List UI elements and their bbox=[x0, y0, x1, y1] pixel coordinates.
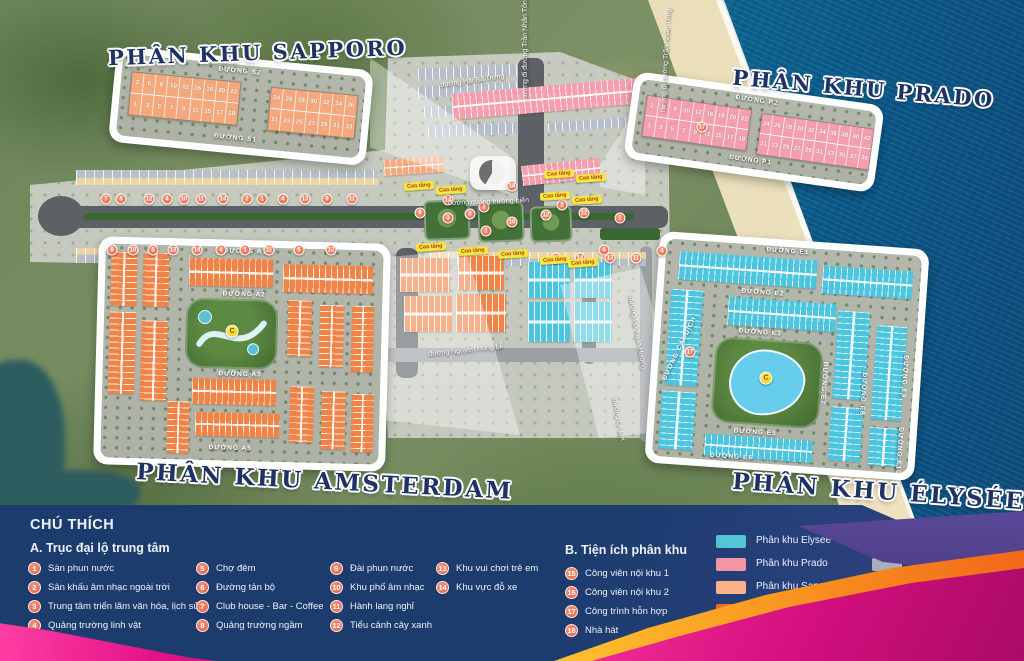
amenity-marker-12: 12 bbox=[579, 208, 590, 219]
road-label: ĐƯỜNG S2 bbox=[218, 66, 262, 77]
lot-strip bbox=[110, 252, 137, 307]
lot-strip bbox=[289, 386, 314, 443]
lot-strip bbox=[678, 251, 818, 289]
amenity-marker-7: 7 bbox=[101, 194, 112, 205]
legend-item-4: 4Quảng trường linh vật bbox=[28, 618, 196, 632]
legend-item-label: Chợ đêm bbox=[216, 563, 256, 574]
legend-item-number: 13 bbox=[436, 562, 449, 575]
amenity-marker-5: 5 bbox=[148, 245, 159, 256]
legend-item-11: 11Hành lang nghỉ bbox=[330, 599, 436, 613]
legend-item-label: Hành lang nghỉ bbox=[350, 601, 414, 612]
legend-item-label: Tiểu cảnh cây xanh bbox=[350, 620, 432, 631]
east-median bbox=[600, 228, 660, 240]
amenity-marker-9: 9 bbox=[107, 245, 118, 256]
amenity-marker-11: 11 bbox=[196, 194, 207, 205]
road-label: ĐƯỜNG A5 bbox=[208, 444, 251, 452]
legend-item-number: 14 bbox=[436, 581, 449, 594]
lot-strip bbox=[321, 391, 347, 450]
amenity-marker-1: 1 bbox=[615, 213, 626, 224]
amenity-marker-4: 4 bbox=[216, 245, 227, 256]
legend-item-14: 14Khu vực đỗ xe bbox=[436, 580, 538, 594]
road-label: ĐƯỜNG E7 bbox=[819, 361, 829, 405]
sapporo-lot-block: 24262830323436 21232527293133 bbox=[267, 87, 359, 139]
legend-column: 9Đài phun nước10Khu phố âm nhạc11Hành la… bbox=[330, 561, 436, 637]
legend-item-2: 2Sân khấu âm nhạc ngoài trời bbox=[28, 580, 196, 594]
legend-item-3: 3Trung tâm triển lãm văn hóa, lịch sử bbox=[28, 599, 196, 613]
legend-item-label: Khu vực đỗ xe bbox=[456, 582, 517, 593]
legend-item-number: 9 bbox=[330, 562, 343, 575]
amenity-marker-8: 8 bbox=[116, 194, 127, 205]
lot-33: 33 bbox=[342, 116, 355, 138]
legend-item-label: Trung tâm triển lãm văn hóa, lịch sử bbox=[48, 601, 200, 612]
legend-item-label: Sàn phun nước bbox=[48, 563, 114, 574]
amenity-marker-4: 4 bbox=[162, 194, 173, 205]
legend-item-number: 6 bbox=[196, 581, 209, 594]
amenity-marker-17: 17 bbox=[685, 347, 696, 358]
roundabout bbox=[38, 196, 84, 236]
amenity-marker-10: 10 bbox=[507, 217, 518, 228]
legend-item-12: 12Tiểu cảnh cây xanh bbox=[330, 618, 436, 632]
road-label: hướng đi đường Trần Nhân Tông bbox=[522, 0, 529, 100]
decorative-ribbon-right bbox=[554, 511, 1024, 661]
legend-title: CHÚ THÍCH bbox=[30, 517, 114, 533]
legend-item-9: 9Đài phun nước bbox=[330, 561, 436, 575]
amenity-marker-2: 2 bbox=[242, 194, 253, 205]
prado-lot-block: 24262830323436384042 2123252729313335373… bbox=[756, 113, 875, 170]
amsterdam-central-park: C bbox=[185, 298, 279, 370]
elysee-mini-zone bbox=[528, 302, 570, 342]
amenity-marker-11: 11 bbox=[264, 245, 275, 256]
amenity-marker-14: 14 bbox=[218, 194, 229, 205]
central-park-square bbox=[529, 205, 572, 242]
legend-column: 5Chợ đêm6Đường tản bộ7Club house - Bar -… bbox=[196, 561, 330, 637]
amenity-marker-18: 18 bbox=[507, 181, 518, 192]
legend-item-label: Đường tản bộ bbox=[216, 582, 275, 593]
legend-item-number: 5 bbox=[196, 562, 209, 575]
elysee-central-park: C bbox=[710, 336, 824, 429]
lot-strip bbox=[287, 300, 312, 357]
road-label: ĐƯỜNG E9 bbox=[899, 355, 909, 399]
legend-item-label: Quảng trường ngầm bbox=[216, 620, 303, 631]
road-label: ĐƯỜNG S1 bbox=[214, 133, 258, 144]
road-label: ĐƯỜNG A3 bbox=[218, 370, 261, 378]
legend-section-a-title: A. Trục đại lộ trung tâm bbox=[30, 541, 170, 555]
amenity-marker-1: 1 bbox=[240, 245, 251, 256]
legend-item-8: 8Quảng trường ngầm bbox=[196, 618, 330, 632]
lot-strip bbox=[108, 312, 136, 395]
lot-42: 42 bbox=[861, 128, 874, 148]
amenity-marker-8: 8 bbox=[465, 209, 476, 220]
shophouse-row bbox=[76, 170, 378, 185]
road-label: ĐƯỜNG E1 bbox=[766, 246, 810, 256]
lot-strip bbox=[140, 320, 168, 401]
road-label: ĐƯỜNG E3 bbox=[738, 328, 782, 338]
road-label: ĐƯỜNG P2 bbox=[735, 94, 779, 107]
amenity-marker-12: 12 bbox=[326, 245, 337, 256]
amenity-marker-12: 12 bbox=[144, 194, 155, 205]
legend-item-13: 13Khu vui chơi trẻ em bbox=[436, 561, 538, 575]
lot-strip bbox=[142, 252, 169, 307]
amenity-marker-14: 14 bbox=[192, 245, 203, 256]
amenity-marker-4: 4 bbox=[278, 194, 289, 205]
legend-item-label: Đài phun nước bbox=[350, 563, 413, 574]
lot-strip bbox=[319, 305, 345, 368]
road-label: ĐƯỜNG A2 bbox=[222, 290, 265, 298]
amenity-marker-6: 6 bbox=[294, 245, 305, 256]
legend-column: 1Sàn phun nước2Sân khấu âm nhạc ngoài tr… bbox=[28, 561, 196, 637]
legend-item-number: 1 bbox=[28, 562, 41, 575]
lot-strip bbox=[283, 264, 374, 294]
road-label: ĐƯỜNG E8 bbox=[858, 372, 868, 416]
legend-column: 13Khu vui chơi trẻ em14Khu vực đỗ xe bbox=[436, 561, 538, 637]
legend-item-number: 12 bbox=[330, 619, 343, 632]
legend-item-1: 1Sàn phun nước bbox=[28, 561, 196, 575]
legend-item-number: 2 bbox=[28, 581, 41, 594]
lot-19: 19 bbox=[225, 103, 238, 125]
lot-strip bbox=[351, 306, 375, 373]
amenity-marker-9: 9 bbox=[415, 208, 426, 219]
amenity-marker-13: 13 bbox=[168, 245, 179, 256]
amenity-marker-3: 3 bbox=[443, 213, 454, 224]
amenity-marker-11: 11 bbox=[631, 253, 642, 264]
amenity-marker-10: 10 bbox=[179, 194, 190, 205]
legend-item-number: 3 bbox=[28, 600, 41, 613]
lot-strip bbox=[166, 401, 189, 454]
amenity-marker-10: 10 bbox=[128, 245, 139, 256]
legend-item-label: Club house - Bar - Coffee bbox=[216, 601, 324, 612]
legend-item-6: 6Đường tản bộ bbox=[196, 580, 330, 594]
lot-strip bbox=[192, 378, 277, 406]
sapporo-lot-block: 268101216182022 1357911151719 bbox=[128, 71, 242, 125]
legend-item-10: 10Khu phố âm nhạc bbox=[330, 580, 436, 594]
legend-section-a-items: 1Sàn phun nước2Sân khấu âm nhạc ngoài tr… bbox=[28, 561, 538, 637]
lot-22: 22 bbox=[227, 82, 240, 103]
road-label: ĐƯỜNG E2 bbox=[741, 288, 785, 298]
sapporo-panel-plan: ĐƯỜNG S2 268101216182022 1357911151719 2… bbox=[116, 53, 367, 158]
legend-item-label: Quảng trường linh vật bbox=[48, 620, 141, 631]
lot-strip bbox=[821, 265, 913, 299]
masterplan-poster: ĐƯỜNG S2 268101216182022 1357911151719 2… bbox=[0, 0, 1024, 661]
amsterdam-callout-panel: ĐƯỜNG A1 ĐƯỜNG A2 C ĐƯỜNG A3 bbox=[93, 236, 391, 472]
legend-item-label: Khu phố âm nhạc bbox=[350, 582, 424, 593]
amsterdam-panel-plan: ĐƯỜNG A1 ĐƯỜNG A2 C ĐƯỜNG A3 bbox=[100, 243, 384, 464]
amenity-marker-1: 1 bbox=[257, 194, 268, 205]
amenity-marker-11: 11 bbox=[347, 194, 358, 205]
legend-item-number: 11 bbox=[330, 600, 343, 613]
lot-36: 36 bbox=[344, 95, 357, 116]
legend-item-number: 8 bbox=[196, 619, 209, 632]
legend-item-7: 7Club house - Bar - Coffee bbox=[196, 599, 330, 613]
amenity-marker-13: 13 bbox=[300, 194, 311, 205]
amenity-marker-17: 17 bbox=[697, 122, 708, 133]
amenity-marker-2: 2 bbox=[557, 200, 568, 211]
lot-39: 39 bbox=[858, 148, 871, 169]
lot-strip bbox=[658, 390, 696, 450]
legend-item-number: 7 bbox=[196, 600, 209, 613]
amenity-marker-9: 9 bbox=[322, 194, 333, 205]
legend-item-5: 5Chợ đêm bbox=[196, 561, 330, 575]
amenity-marker-13: 13 bbox=[605, 253, 616, 264]
amenity-marker-4: 4 bbox=[657, 246, 668, 257]
lot-strip bbox=[195, 412, 280, 438]
amenity-marker-1: 1 bbox=[481, 226, 492, 237]
lot-19: 19 bbox=[735, 129, 748, 150]
amenity-marker-12: 12 bbox=[541, 210, 552, 221]
lot-22: 22 bbox=[738, 109, 751, 129]
lot-strip bbox=[350, 394, 374, 453]
legend-item-label: Khu vui chơi trẻ em bbox=[456, 563, 538, 574]
legend-item-label: Sân khấu âm nhạc ngoài trời bbox=[48, 582, 170, 593]
lot-strip bbox=[189, 258, 274, 288]
legend-item-number: 10 bbox=[330, 581, 343, 594]
